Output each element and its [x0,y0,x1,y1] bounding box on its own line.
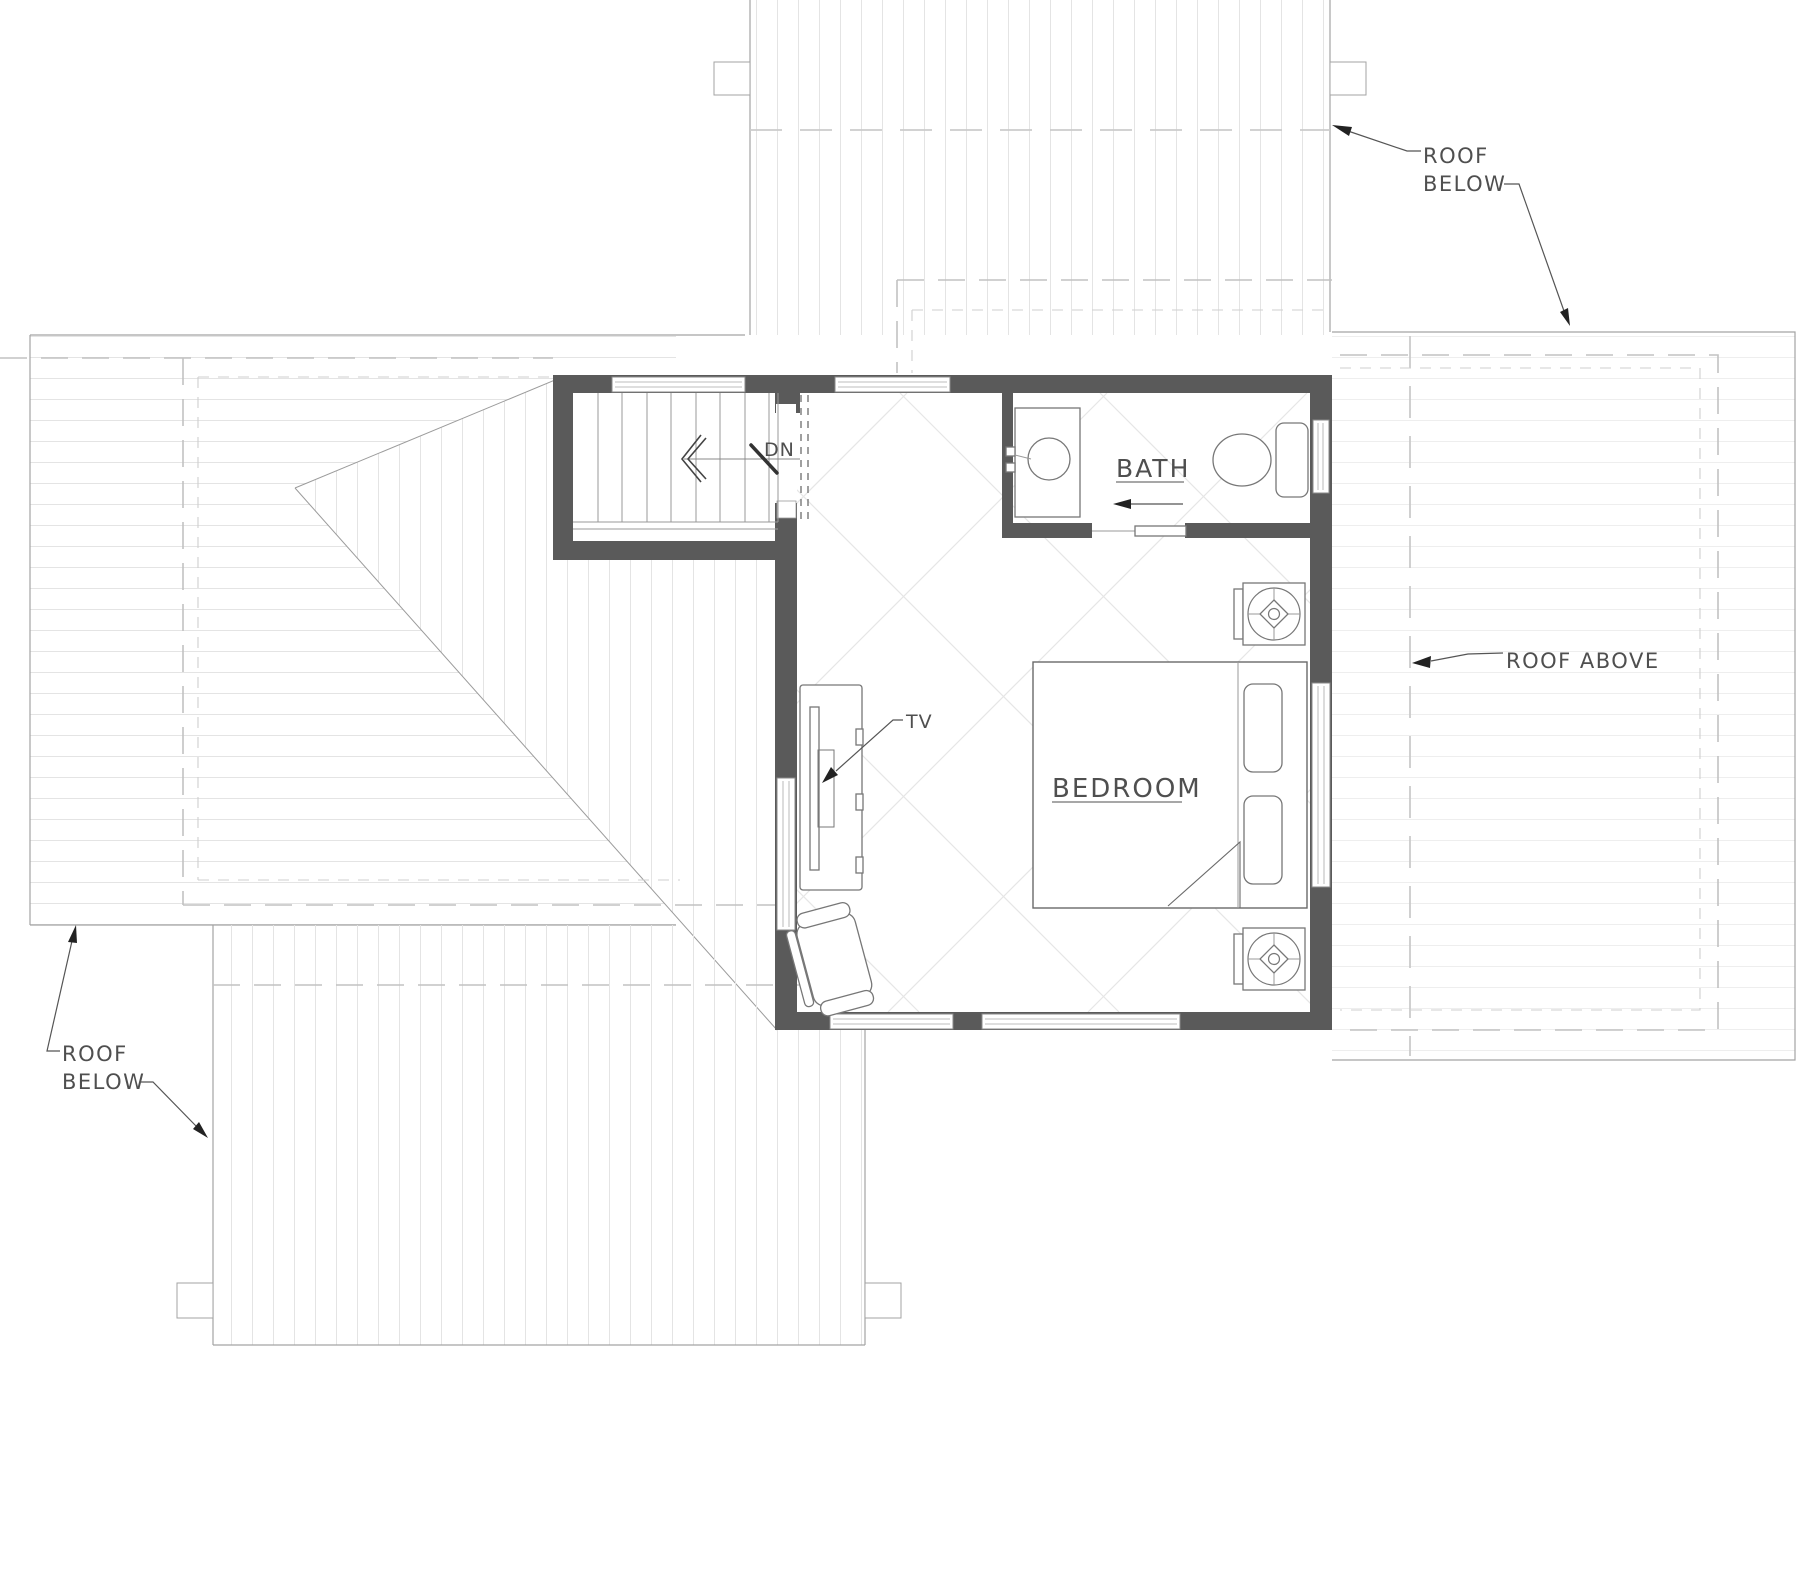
window-bedroom-west [777,778,795,930]
roof-below-callout-top-right: ROOF BELOW [1332,125,1570,326]
leader-arrow [1332,125,1352,136]
pillow [1244,684,1282,772]
floor-plan-drawing: DN BATH [0,0,1800,1584]
window-south-2 [982,1014,1180,1029]
tv-console [800,685,863,890]
roof-below-bottom-label-line1: ROOF [62,1042,128,1066]
window-south-1 [830,1014,953,1029]
roof-tab-right [1330,62,1366,95]
window-bedroom-east [1312,683,1330,887]
roof-tab-bottom-right [865,1283,901,1318]
roof-above-label: ROOF ABOVE [1506,649,1660,673]
top-roof-panel [714,0,1366,335]
floor-plan-sheet: DN BATH [0,0,1800,1584]
ceiling-fan-north [1234,583,1305,645]
leader-arrow [1560,308,1570,326]
right-roof-panel [1332,332,1795,1060]
wall-stub-cap [776,404,796,413]
window-north-1 [612,377,745,392]
roof-below-top-label-line1: ROOF [1423,144,1489,168]
tv-label: TV [905,711,933,733]
leader-arrow [68,925,77,943]
roof-tab-bottom-left [177,1283,213,1318]
bedroom-label: BEDROOM [1052,774,1202,804]
roof-tab-left [714,62,750,95]
bath-label: BATH [1116,454,1190,483]
window-bath-east [1313,420,1329,493]
stair-down-label: DN [764,439,795,461]
pillow [1244,796,1282,884]
ceiling-fan-south [1234,928,1305,990]
window-north-2 [835,377,950,392]
sink-vanity [1006,408,1080,517]
roof-below-callout-bottom-left: ROOF BELOW [47,925,208,1138]
roof-below-bottom-label-line2: BELOW [62,1070,145,1094]
roof-below-top-label-line2: BELOW [1423,172,1506,196]
wall-end-cap [777,501,796,518]
